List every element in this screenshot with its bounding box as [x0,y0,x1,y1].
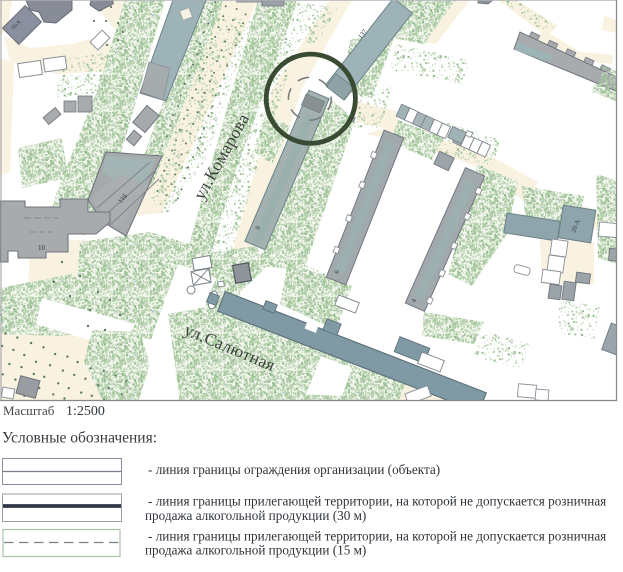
svg-text:продажа алкогольной продукции: продажа алкогольной продукции (30 м) [145,508,366,523]
svg-text:- линия границы прилегающей те: - линия границы прилегающей территории, … [148,529,606,544]
svg-text:10: 10 [38,244,46,252]
svg-text:Масштаб: Масштаб [3,403,55,418]
svg-text:- линия границы ограждения орг: - линия границы ограждения организации (… [148,462,440,477]
svg-text:- линия границы прилегающей те: - линия границы прилегающей территории, … [148,494,606,509]
svg-text:1:2500: 1:2500 [66,404,105,419]
svg-text:Условные обозначения:: Условные обозначения: [2,430,157,447]
svg-text:продажа алкогольной продукции: продажа алкогольной продукции (15 м) [145,543,366,558]
